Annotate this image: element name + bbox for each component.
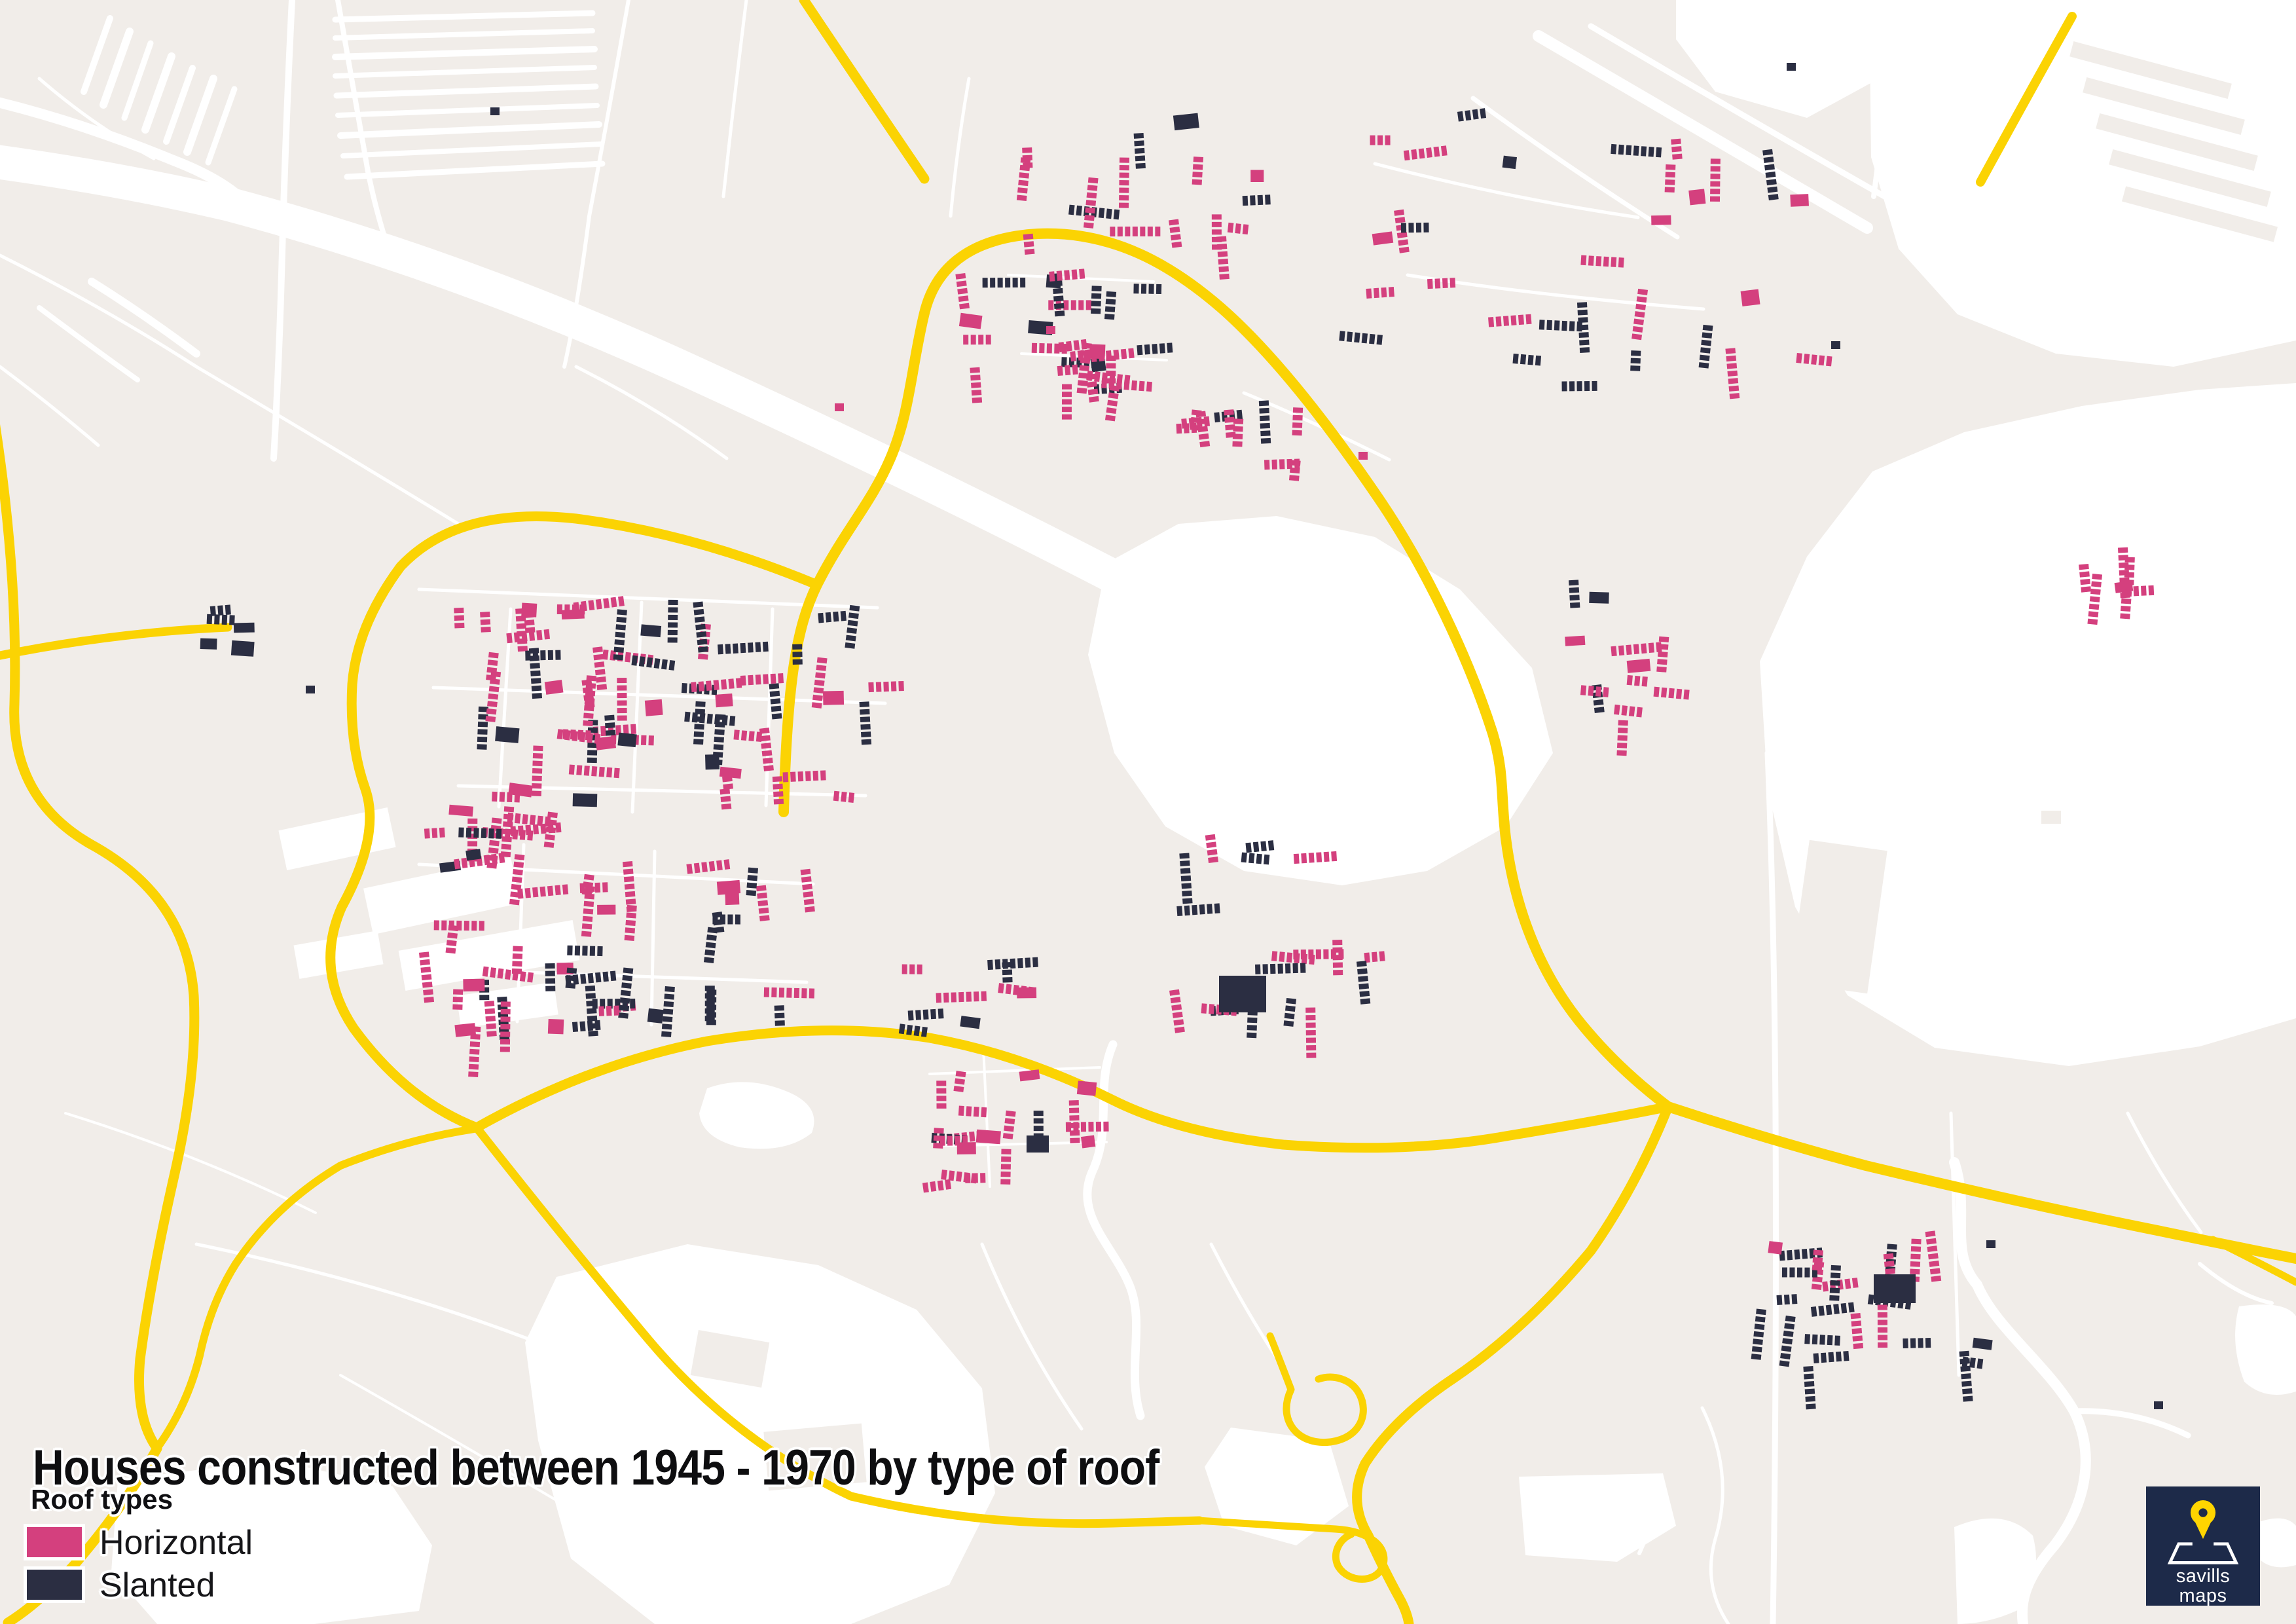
- building: [1831, 341, 1840, 349]
- building: [490, 107, 500, 115]
- pin-hole: [2198, 1508, 2207, 1517]
- building: [1027, 1135, 1049, 1153]
- open-area: [2257, 1519, 2296, 1568]
- location-pin-icon: [2191, 1500, 2215, 1539]
- basemap: [0, 0, 2296, 1624]
- building: [835, 403, 844, 411]
- building: [1874, 1274, 1916, 1303]
- legend-swatch-slanted: [27, 1570, 82, 1600]
- building: [1358, 452, 1368, 460]
- map-outline-icon: [2170, 1544, 2236, 1563]
- open-area: [2235, 1304, 2296, 1395]
- legend-label-slanted: Slanted: [100, 1566, 215, 1605]
- map-title: Houses constructed between 1945 - 1970 b…: [33, 1439, 1159, 1496]
- logo-text: savills maps: [2176, 1566, 2230, 1606]
- building: [2154, 1401, 2163, 1409]
- legend-label-horizontal: Horizontal: [100, 1523, 253, 1562]
- logo-line-savills: savills: [2176, 1566, 2230, 1586]
- savills-maps-logo: savills maps: [2146, 1486, 2260, 1606]
- building: [1787, 63, 1796, 71]
- building: [1046, 326, 1055, 334]
- logo-graphic: [2146, 1486, 2260, 1568]
- legend-swatch-horizontal: [27, 1527, 82, 1557]
- building: [1986, 1240, 1995, 1248]
- logo-line-maps: maps: [2176, 1586, 2230, 1606]
- legend-heading: Roof types: [31, 1484, 173, 1515]
- building: [306, 686, 315, 693]
- building: [1219, 976, 1266, 1012]
- map-export: Houses constructed between 1945 - 1970 b…: [0, 0, 2296, 1624]
- land-patch: [2041, 811, 2061, 824]
